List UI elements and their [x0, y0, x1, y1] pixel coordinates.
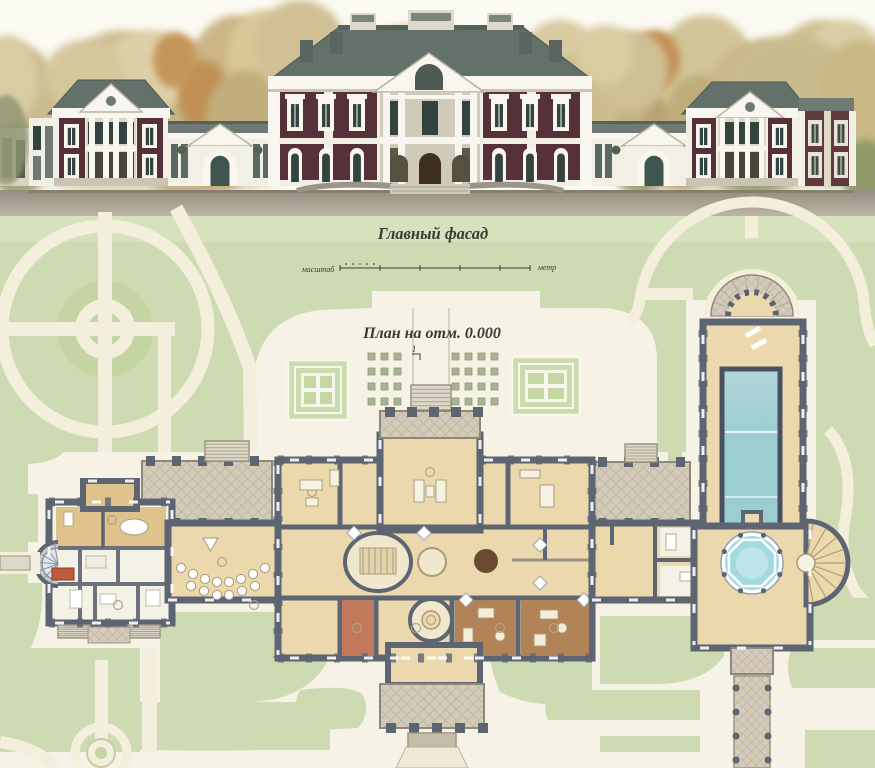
svg-text:Главный фасад: Главный фасад — [377, 224, 488, 243]
svg-text:3: 3 — [744, 290, 749, 298]
svg-text:1: 1 — [412, 344, 417, 354]
svg-text:метр: метр — [537, 263, 556, 272]
svg-text:План на отм. 0.000: План на отм. 0.000 — [362, 325, 501, 342]
svg-text:масштаб: масштаб — [301, 265, 336, 274]
